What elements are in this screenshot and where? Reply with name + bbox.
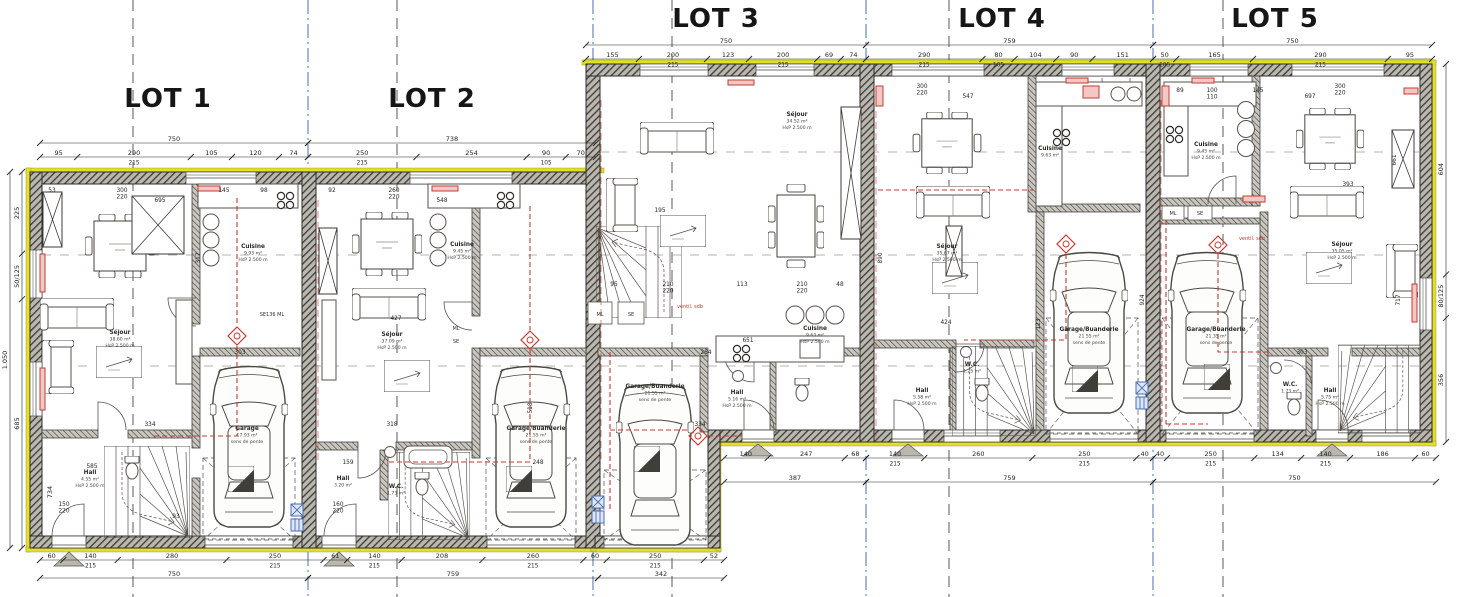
radiator [1066,78,1088,83]
room-label-line: Séjour [109,329,130,336]
dim-value: 105 [205,149,217,157]
dim-value-sub: 215 [1320,462,1331,468]
room-label-line: HsP 2.500 m [75,483,105,489]
room-label-line: HsP 2.500 m [932,257,962,263]
interior-dim: 264 [700,350,711,356]
interior-dim: 92 [328,188,336,194]
interior-wall [192,478,200,536]
interior-dim: 48 [836,282,844,288]
interior-dim: 113 [736,282,747,288]
drain-symbol [1136,382,1148,394]
dim-value: 60 [591,552,599,560]
dimension-row: 2502152549010570 [305,149,599,167]
room-label-line: Séjour [1331,241,1352,248]
radiator [1083,86,1099,98]
dim-value: 80 [994,51,1002,59]
kitchen-appliance-circle [786,306,804,324]
radiator [876,86,883,106]
bathtub [404,446,452,468]
interior-dim: 220 [916,91,927,97]
room-label-line: Garage/Buanderie [625,384,684,390]
interior-dim: 334 [694,422,705,428]
room-label-line: Hall [1324,388,1337,394]
dim-value-sub: 215 [269,564,280,570]
exterior-wall [30,172,42,548]
radiator [198,186,220,191]
room-label-line: sens de pente [639,397,672,403]
dim-value: 247 [800,450,812,458]
tag-l3_se: SE [628,312,634,318]
dim-value: 250 [269,552,281,560]
cooktop-burner [497,192,504,199]
room-label-line: 9.63 m² [1041,152,1059,158]
dim-value: 60 [48,552,56,560]
room-label: Hall3.20 m² [334,476,352,488]
radiator [1162,86,1169,106]
dim-value: 290 [128,149,140,157]
dim-value-sub: 215 [1205,462,1216,468]
dim-value: 61 [331,552,339,560]
interior-dim: 697 [1304,94,1315,100]
plan-element [322,536,356,548]
dim-value-sub: 215 [527,564,538,570]
staircase [1338,345,1420,433]
dim-value-sub: 215 [128,161,139,167]
dim-value: 52 [710,552,718,560]
dim-value: 685 [13,417,21,429]
dim-value: 342 [655,570,667,578]
cooktop-burner [506,201,513,208]
tv-sideboard [176,300,192,384]
room-label: Séjour34.52 m²HsP 2.500 m [782,111,812,131]
cooktop-burner [742,345,749,352]
interior-wall [480,348,586,356]
interior-dim: 260 [388,188,399,194]
dim-value: 738 [446,135,458,143]
lot-title-2: LOT 2 [388,84,476,114]
plan-element [1316,430,1348,442]
dim-value: 90 [1070,51,1078,59]
interior-dim: 159 [342,460,353,466]
dimension-row: 750 [1150,474,1439,485]
room-label-line: Hall [337,476,350,482]
cooktop-burner [1175,126,1182,133]
dim-value: 290 [918,51,930,59]
room-label-line: 3.20 m² [334,482,352,488]
room-label-line: 4.55 m² [81,476,99,482]
interior-dim: 95 [610,282,618,288]
exterior-wall [302,172,316,548]
interior-dim: 145 [1252,88,1263,94]
room-label-line: 9.45 m² [1197,148,1215,154]
dim-value: 750 [720,37,732,45]
kitchen-appliance-circle [1127,87,1141,101]
dim-value: 260 [972,450,984,458]
room-label: Cuisine9.93 m²HsP 2.500 m [238,244,268,263]
dim-value: 140 [740,450,752,458]
room-label-line: sens de pente [1200,340,1233,346]
dim-value: 280 [166,552,178,560]
room-label-line: 35.67 m² [937,250,958,256]
dimension-row: 342 [595,570,727,581]
dim-value: 151 [1116,51,1128,59]
entrance-door-opening [322,536,356,548]
radiator [40,368,45,410]
dim-value: 208 [436,552,448,560]
room-label-line: 1.73 m² [387,490,405,496]
dim-value: 50/125 [13,265,21,288]
toilet-icon [415,472,429,495]
entrance-door-opening [1316,430,1348,442]
dim-value: 140 [1319,450,1331,458]
dim-value: 70 [577,149,585,157]
kitchen-appliance-circle [430,214,446,230]
dimension-row: 4025021513414021518660 [1150,450,1439,468]
dim-value: 155 [606,51,618,59]
interior-wall [950,348,956,438]
dim-value-sub: 215 [1079,462,1090,468]
window [892,64,984,76]
room-label-line: HsP 2.500 m [377,345,407,351]
interior-wall [472,348,480,458]
kitchen-appliance-circle [1111,87,1125,101]
dim-value: 90 [542,149,550,157]
interior-dim: 145 [218,188,229,194]
interior-dim: 334 [144,422,155,428]
interior-dim: 317 [196,252,202,263]
dim-value: 750 [1288,474,1300,482]
cooktop-burner [1166,126,1173,133]
room-label-line: 9.93 m² [244,250,262,256]
dim-value: 750 [1286,37,1298,45]
room-label-line: W.C. [965,362,980,368]
duct-shaft [132,196,184,254]
interior-dim: 160 [332,502,343,508]
interior-wall [1306,356,1312,436]
duct-shaft [43,192,62,247]
interior-dim: 695 [154,198,165,204]
interior-wall [980,340,1034,348]
drain-symbol [1136,397,1148,409]
dimension-column: 22550/125685 [13,169,25,551]
interior-dim: 300 [1334,84,1345,90]
dim-value-sub: 215 [357,161,368,167]
dining-table [768,184,824,268]
radiator [1243,196,1265,202]
heating-manifold-symbol [228,327,246,345]
room-label-line: Garage/Buanderie [1059,327,1118,333]
dim-value: 40 [1156,450,1164,458]
dim-value: 604 [1437,163,1445,175]
interior-dim: 890 [878,252,884,263]
dim-value: 80/125 [1437,285,1445,308]
dim-value: 123 [722,51,734,59]
interior-dim: 661 [1392,154,1398,165]
room-label-line: Cuisine [450,242,474,248]
interior-dim: 123 [1036,318,1042,329]
kitchen-appliance-circle [430,250,446,266]
room-label-line: W.C. [389,484,404,490]
plan-element [1166,430,1254,442]
cooktop-burner [733,354,740,361]
dimension-row: 759 [305,570,601,581]
room-label-line: HsP 2.500 m [722,403,752,409]
dimension-row: 750 [37,570,311,581]
interior-dim: 220 [796,289,807,295]
dimension-row: 750 [583,37,869,48]
toilet-icon [795,378,809,401]
dim-value-sub: 105 [993,63,1004,69]
room-label-line: sens de pente [520,439,553,445]
sofa [40,298,114,330]
dim-value: 186 [1376,450,1388,458]
dim-value: 750 [168,135,180,143]
sofa [352,288,426,320]
interior-dim: 220 [332,509,343,515]
radiator [728,80,754,85]
dim-value: 200 [777,51,789,59]
room-label-line: Hall [916,388,929,394]
room-label-line: Cuisine [1038,146,1062,152]
room-label: Hall4.55 m²HsP 2.500 m [75,470,105,489]
interior-dim: 110 [1206,95,1217,101]
radiator [1412,284,1417,322]
cooktop-burner [1166,135,1173,142]
plan-element [291,519,303,531]
interior-wall [128,430,192,438]
tag-l5_ml: ML [1169,211,1176,217]
coffee-table [660,215,706,247]
cooktop-burner [277,201,284,208]
cooktop-burner [1062,138,1069,145]
car-icon [210,367,288,528]
dimension-row: 387 [721,474,869,485]
sofa [640,122,714,154]
room-label-line: HsP 2.500 m [447,255,477,261]
interior-wall [874,340,956,348]
interior-dim: 717 [1396,294,1402,305]
dining-table [913,112,981,174]
garage-door [1166,430,1254,442]
cooktop-burner [1062,129,1069,136]
dim-value: 759 [1003,37,1015,45]
room-label-line: HsP 2.500 m [105,343,135,349]
tag-l5_ventil: ventil. sdb [1239,236,1265,242]
interior-dim: 220 [58,509,69,515]
tag-l1_se: SE136 ML [260,312,285,318]
window [1190,64,1248,76]
room-label-line: HsP 2.500 m [1191,155,1221,161]
room-label-line: Garage/Buanderie [506,426,565,432]
room-label: Séjour35.05 m²HsP 2.500 m [1327,241,1357,261]
dim-value: 290 [1314,51,1326,59]
room-label-line: 35.05 m² [1332,248,1353,254]
room-label-line: 9.45 m² [453,248,471,254]
tag-l3_ventil: ventil. sdb [677,304,703,310]
dim-value-sub: 215 [650,564,661,570]
entrance-door-opening [892,430,924,442]
plan-element [742,430,774,442]
room-label-line: 21.55 m² [1079,333,1100,339]
duct-shaft [841,107,861,239]
interior-dim: 53 [48,188,56,194]
dim-value: 250 [1078,450,1090,458]
interior-wall [200,348,300,356]
interior-dim: 548 [436,198,447,204]
room-label-line: 21.35 m² [1206,333,1227,339]
dim-value: 387 [789,474,801,482]
interior-dim: 518 [528,402,534,413]
garage-door [205,536,293,548]
kitchen-appliance-circle [806,306,824,324]
interior-wall [42,430,98,438]
interior-dim: 195 [654,208,665,214]
kitchen-appliance-circle [1238,102,1255,119]
toilet-icon [125,456,139,479]
cooktop-burner [277,192,284,199]
interior-dim: 393 [1342,182,1353,188]
window [186,172,256,184]
washbasin [1271,363,1282,374]
exterior-wall [1420,64,1432,442]
cooktop-burner [506,192,513,199]
room-label-line: sens de pente [1073,340,1106,346]
room-label-line: HsP 2.500 m [238,257,268,263]
staircase [104,446,190,538]
dimension-row: 750 [37,135,311,146]
room-label-line: sens de pente [231,439,264,445]
sofa [916,186,990,218]
dimension-row: 759 [863,37,1156,48]
dining-table [1296,108,1364,170]
drain-symbol [291,504,303,516]
lot-title-4: LOT 4 [958,4,1046,34]
room-label-line: 5.58 m² [913,394,931,400]
lot-title-3: LOT 3 [672,4,760,34]
dining-table [352,212,422,276]
plan-element [1136,397,1148,409]
interior-dim: 210 [662,282,673,288]
coffee-table [96,346,142,378]
window [1062,64,1114,76]
dim-value: 254 [465,149,477,157]
lot-title-5: LOT 5 [1231,4,1319,34]
room-label: W.C.1.73 m² [1281,382,1299,394]
car-icon [492,367,570,528]
tag-l2_ml: ML [452,326,459,332]
room-label: Cuisine9.45 m²HsP 2.500 m [1191,142,1221,161]
window [1420,278,1432,330]
interior-dim: 210 [796,282,807,288]
cooktop-burner [733,345,740,352]
room-label-line: 17.93 m² [237,432,258,438]
interior-wall [192,356,200,448]
exterior-wall [860,64,874,442]
coffee-table [384,360,430,392]
room-label-line: Séjour [381,331,402,338]
room-label-line: Garage/Buanderie [1186,327,1245,333]
entrance-door-opening [742,430,774,442]
cooktop-burner [1053,138,1060,145]
drain-symbol [592,496,604,508]
radiator [432,186,458,191]
interior-dim: 89 [1176,88,1184,94]
dim-value: 134 [1272,450,1284,458]
toilet-icon [1287,392,1301,415]
room-label-line: Séjour [786,111,807,118]
dim-value: 104 [1029,51,1041,59]
room-label-line: 21.55 m² [645,390,666,396]
dimension-row: 759 [863,474,1156,485]
dimension-row: 9529021510512074 [37,149,311,167]
dim-value: 750 [168,570,180,578]
room-label-line: HsP 2.500 m [1315,401,1345,407]
room-label-line: Hall [84,470,97,476]
garage-door [487,536,575,548]
plan-content: 7507389529021510512074250215254901057075… [1,0,1449,597]
tv-sideboard [322,300,336,380]
room-label-line: 5.75 m² [1321,394,1339,400]
interior-dim: 248 [532,460,543,466]
entrance-step [54,552,84,566]
window [410,172,512,184]
interior-dim: 220 [662,289,673,295]
garage-door [1050,430,1138,442]
dim-value: 200 [667,51,679,59]
dim-value-sub: 215 [369,564,380,570]
entrance-door-opening [52,536,86,548]
staircase [952,346,1036,436]
dimension-column: 60480/125356 [1437,61,1449,445]
dim-value: 356 [1437,374,1445,386]
floor-plan-drawing: 7507389529021510512074250215254901057075… [0,0,1457,597]
dim-value: 140 [889,450,901,458]
dim-value: 250 [356,149,368,157]
heating-manifold-symbol [1057,235,1075,253]
room-label: Séjour38.60 m²HsP 2.500 m [105,329,135,349]
dimension-row: 6014021528025021561140215208260215602502… [37,552,727,570]
washbasin [961,347,972,358]
armchair [606,178,638,232]
room-label-line: HsP 2.500 m [800,339,830,345]
radiator [40,254,45,292]
kitchen-appliance-circle [203,250,219,266]
kitchen-appliance-circle [430,232,446,248]
interior-dim: 93 [172,514,180,520]
dim-value: 120 [249,149,261,157]
armchair [42,340,74,394]
cooktop-burner [286,192,293,199]
dim-value: 225 [13,207,21,219]
plan-element [52,536,86,548]
dim-value: 250 [649,552,661,560]
room-label-line: Cuisine [241,244,265,250]
dimension-row: 750 [1150,37,1435,48]
interior-wall [1028,76,1036,212]
duct-shaft [319,228,337,294]
room-label: Hall5.58 m²HsP 2.500 m [907,388,937,407]
interior-dim: 547 [962,94,973,100]
interior-dim: 300 [116,188,127,194]
dim-value: 40 [1141,450,1149,458]
dim-value: 260 [527,552,539,560]
cooktop-burner [742,354,749,361]
room-label-line: 38.60 m² [110,336,131,342]
interior-dim: 300 [916,84,927,90]
door-swing [98,402,126,430]
room-label: Séjour37.09 m²HsP 2.500 m [377,331,407,351]
interior-dim: 427 [390,316,401,322]
